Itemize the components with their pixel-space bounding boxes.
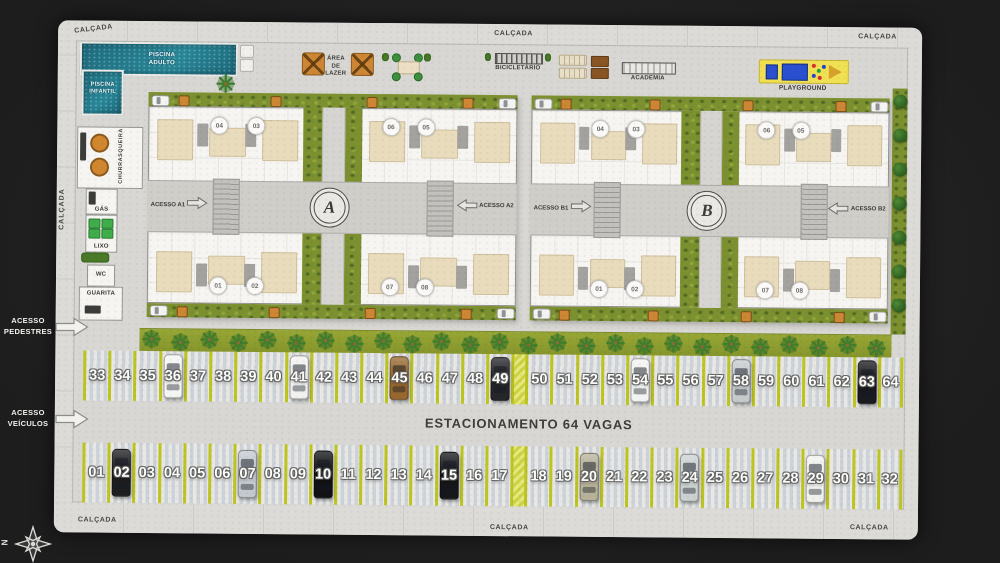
- parking-slot-number: 40: [265, 369, 281, 385]
- wc-label: WC: [88, 272, 114, 278]
- parking-slot-number: 20: [581, 469, 597, 485]
- parking-slot-number: 13: [390, 467, 406, 483]
- stair-core: [593, 182, 621, 238]
- parking-slot-number: 53: [607, 372, 623, 388]
- stair-core: [801, 184, 829, 240]
- parking-slot-06: 06: [208, 444, 234, 504]
- building-a: A0403060501020708ACESSO A1ACESSO A2: [147, 92, 518, 320]
- parking-slot-number: 02: [113, 465, 129, 481]
- apartment-fixture: [197, 123, 208, 146]
- parking-slot-03: 03: [132, 443, 158, 503]
- apartment-fixture: [831, 129, 842, 152]
- access-arrow-icon: [570, 200, 591, 218]
- carport-car-icon: [534, 98, 552, 109]
- unit-number-badge: 07: [381, 278, 399, 296]
- unit-number-badge: 08: [790, 282, 808, 300]
- parking-slot-number: 08: [265, 466, 281, 482]
- tree-icon: [892, 231, 906, 245]
- tree-strip: [891, 89, 908, 335]
- palm-tree-icon: [692, 337, 712, 357]
- parking-slot-60: 60: [777, 357, 803, 407]
- garden-table-icon: [836, 101, 847, 112]
- parking-slot-57: 57: [701, 356, 727, 406]
- parking-slot-number: 55: [657, 372, 673, 388]
- parking-slot-58: 58: [727, 356, 753, 406]
- bush-icon: [545, 53, 551, 61]
- bush-icon: [81, 252, 109, 262]
- trash-bin-icon: [88, 219, 100, 229]
- sidewalk-left: [54, 40, 77, 502]
- parking-slot-number: 11: [341, 467, 356, 483]
- palm-tree-icon: [460, 335, 480, 355]
- parking-slot-54: 54: [626, 355, 652, 405]
- parking-slot-number: 32: [882, 471, 898, 487]
- apartment-fixture: [579, 126, 590, 149]
- sidewalk-label: CALÇADA: [58, 188, 65, 230]
- playground-item: [766, 64, 778, 79]
- parking-slot-37: 37: [184, 351, 210, 401]
- leisure-area-label: ÁREA DE LAZER: [322, 56, 350, 79]
- parking-slot-number: 48: [467, 371, 483, 387]
- palm-tree-icon: [402, 334, 422, 354]
- palm-tree-icon: [199, 329, 219, 349]
- apartment-furniture: [156, 251, 192, 292]
- guardhouse: GUARITA: [79, 286, 123, 320]
- adult-pool-label: PISCINA ADULTO: [140, 52, 184, 67]
- parking-slot-number: 62: [834, 374, 850, 390]
- bbq-counter-icon: [80, 132, 86, 160]
- apartment-furniture: [846, 257, 881, 298]
- access-arrow-icon: [828, 202, 849, 215]
- parking-slot-25: 25: [701, 448, 727, 508]
- garden-table-icon: [834, 312, 845, 323]
- pedestrian-access-label: ACESSO PEDESTRES: [2, 316, 54, 337]
- palm-tree-icon: [257, 330, 277, 350]
- parking-slot-35: 35: [133, 351, 159, 401]
- unit-number-badge: 02: [246, 277, 264, 295]
- parking-slot-number: 38: [215, 369, 231, 385]
- parking-slot-number: 43: [341, 370, 357, 386]
- parking-slot-number: 37: [190, 368, 206, 384]
- unit-number-badge: 06: [382, 118, 400, 136]
- sidewalk-label: CALÇADA: [490, 524, 529, 531]
- parking-slot-number: 39: [240, 369, 256, 385]
- parking-row-bottom: 0102030405060708091011121314151617181920…: [82, 442, 902, 509]
- trash-bin-icon: [101, 229, 113, 239]
- parking-slot-52: 52: [575, 355, 601, 405]
- unit-number-badge: 03: [627, 120, 645, 138]
- parking-slot-05: 05: [183, 443, 209, 503]
- garden-table-icon: [176, 306, 187, 317]
- palm-tree-icon: [228, 333, 248, 353]
- guardhouse-label: GUARITA: [80, 290, 122, 296]
- playground-item: [817, 69, 821, 73]
- parking-slot-23: 23: [650, 447, 676, 507]
- building-letter: A: [324, 198, 336, 218]
- palm-tree-icon: [431, 332, 451, 352]
- parking-slot-30: 30: [826, 449, 852, 509]
- parking-slot-13: 13: [384, 445, 410, 505]
- parking-slot-number: 16: [466, 468, 482, 484]
- playground-structure: [759, 59, 849, 84]
- sidewalk-label: CALÇADA: [850, 524, 889, 531]
- unit-number-badge: 05: [417, 118, 435, 136]
- bush-icon: [424, 53, 431, 61]
- unit-number-badge: 02: [626, 280, 644, 298]
- parking-slot-number: 57: [708, 373, 724, 389]
- garden-table-icon: [741, 311, 752, 322]
- palm-tree-icon: [170, 332, 190, 352]
- access-arrow-icon: [456, 199, 477, 212]
- sidewalk-label: CALÇADA: [78, 516, 117, 523]
- apartment-furniture: [473, 254, 509, 295]
- pedestrian-access-arrow-icon: [55, 317, 89, 337]
- carport-car-icon: [152, 95, 170, 106]
- bbq-room: CHURRASQUEIRA: [77, 126, 144, 189]
- building-access-label: ACESSO B2: [851, 206, 886, 212]
- parking-slot-62: 62: [827, 357, 853, 407]
- carport-car-icon: [150, 305, 168, 316]
- compass-rose-icon: [14, 525, 52, 563]
- apartment-fixture: [196, 263, 207, 286]
- access-arrow-icon: [187, 196, 208, 214]
- parking-slot-number: 19: [556, 469, 572, 485]
- site-plan-image: CALÇADA CALÇADA CALÇADA CALÇADA CALÇADA …: [0, 0, 1000, 563]
- parking-slot-28: 28: [776, 449, 802, 509]
- palm-tree-icon: [750, 337, 770, 357]
- gym-mat-icon: [591, 68, 609, 79]
- tree-icon: [892, 197, 906, 211]
- palm-tree-icon: [315, 330, 335, 350]
- apartment-furniture: [642, 123, 677, 164]
- garden-table-icon: [364, 307, 375, 318]
- parking-slot-01: 01: [82, 442, 108, 502]
- parking-slot-20: 20: [575, 447, 601, 507]
- apartment-furniture: [538, 255, 573, 296]
- gym-mat-icon: [591, 56, 609, 67]
- gas-label: GÁS: [87, 206, 117, 212]
- parking-slot-21: 21: [600, 447, 626, 507]
- parking-slot-41: 41: [284, 352, 310, 402]
- building-letter-badge: A: [309, 187, 349, 227]
- palm-tree-icon: [141, 329, 161, 349]
- pool-lounger: [240, 45, 254, 58]
- bbq-table-icon: [90, 134, 109, 153]
- parking-slot-59: 59: [752, 356, 778, 406]
- parking-slot-number: 52: [582, 372, 598, 388]
- building-access-right: ACESSO B2: [828, 202, 886, 216]
- parking-slot-number: 61: [808, 374, 824, 390]
- wc-room: WC: [87, 265, 115, 287]
- bush-icon: [485, 53, 491, 61]
- palm-tree-icon: [721, 334, 741, 354]
- palm-tree-icon: [837, 335, 857, 355]
- gym-bench-icon: [559, 55, 587, 66]
- parking-slot-number: 64: [882, 374, 898, 390]
- parking-slot-number: 27: [757, 470, 773, 486]
- parking-slot-45: 45: [385, 353, 411, 403]
- garden-table-icon: [558, 309, 569, 320]
- garden-table-icon: [268, 307, 279, 318]
- parking-slot-55: 55: [651, 355, 677, 405]
- parking-slot-29: 29: [801, 449, 827, 509]
- unit-number-badge: 08: [416, 278, 434, 296]
- parking-slot-number: 30: [833, 471, 849, 487]
- vehicle-access-arrow-icon: [55, 409, 89, 429]
- bbq-label: CHURRASQUEIRA: [118, 130, 124, 184]
- parking-slot-number: 03: [139, 465, 155, 481]
- parking-slot-27: 27: [751, 448, 777, 508]
- garden-table-icon: [462, 97, 473, 108]
- apartment-furniture: [540, 122, 575, 163]
- unit-number-badge: 03: [247, 117, 265, 135]
- building-access-label: ACESSO A2: [479, 202, 514, 208]
- apartment-furniture: [641, 256, 676, 297]
- carport-car-icon: [870, 101, 888, 112]
- unit-number-badge: 05: [792, 122, 810, 140]
- gym-label: ACADEMIA: [618, 75, 678, 83]
- parking-slot-number: 22: [631, 469, 647, 485]
- parking-slot-number: 18: [530, 468, 546, 484]
- parking-slot-08: 08: [258, 444, 284, 504]
- parking-slot-number: 34: [114, 368, 130, 384]
- palm-tree-icon: [663, 334, 683, 354]
- parking-slot-number: 24: [682, 470, 698, 486]
- parking-slot-number: 49: [492, 371, 508, 387]
- parking-slot-14: 14: [409, 445, 435, 505]
- parking-slot-number: 47: [442, 371, 458, 387]
- palm-tree-icon: [605, 333, 625, 353]
- tree-icon: [892, 163, 906, 177]
- parking-slot-number: 59: [758, 373, 774, 389]
- palm-tree-icon: [489, 332, 509, 352]
- sidewalk-label: CALÇADA: [858, 33, 897, 40]
- palm-tree-icon: [866, 338, 886, 358]
- bike-rack-icon: [495, 53, 543, 64]
- site-plan-sheet: CALÇADA CALÇADA CALÇADA CALÇADA CALÇADA …: [54, 20, 922, 540]
- parking-slot-12: 12: [359, 445, 385, 505]
- kids-pool-label: PISCINA INFANTIL: [84, 81, 122, 95]
- apartment-furniture: [157, 119, 193, 160]
- parking-slot-34: 34: [108, 351, 134, 401]
- apartment-furniture: [262, 120, 298, 161]
- parking-slot-11: 11: [334, 445, 360, 505]
- parking-slot-number: 29: [807, 471, 823, 487]
- parking-row-top: 3334353637383940414243444546474849505152…: [83, 350, 903, 407]
- unit-number-badge: 04: [591, 120, 609, 138]
- parking-slot-02: 02: [107, 443, 133, 503]
- parking-slot-18: 18: [524, 446, 550, 506]
- bush-icon: [382, 53, 389, 61]
- parking-slot-49: 49: [486, 354, 512, 404]
- stair-core: [426, 180, 454, 236]
- parking-slot-number: 28: [782, 471, 798, 487]
- parking-slot-number: 44: [366, 370, 382, 386]
- building-access-right: ACESSO A2: [456, 199, 514, 213]
- parking-slot-46: 46: [410, 353, 436, 403]
- tree-icon: [891, 299, 905, 313]
- parking-slot-number: 45: [391, 370, 407, 386]
- parking-slot-09: 09: [284, 444, 310, 504]
- parking-slot-42: 42: [310, 352, 336, 402]
- unit-number-badge: 01: [590, 280, 608, 298]
- parking-slot-15: 15: [435, 446, 461, 506]
- parking-slot-32: 32: [877, 449, 903, 509]
- tree-icon: [892, 265, 906, 279]
- parking-slot-number: 07: [239, 466, 255, 482]
- parking-slot-number: 56: [682, 373, 698, 389]
- pergola-table-icon: [351, 53, 374, 76]
- parking-slot-04: 04: [158, 443, 184, 503]
- garden-table-icon: [366, 96, 377, 107]
- building-access-label: ACESSO A1: [151, 202, 186, 208]
- parking-title: ESTACIONAMENTO 64 VAGAS: [83, 412, 903, 434]
- parking-slot-43: 43: [335, 353, 361, 403]
- parking-slot-44: 44: [360, 353, 386, 403]
- parking-slot-number: 25: [707, 470, 723, 486]
- parking-slot-number: 46: [417, 370, 433, 386]
- parking-slot-64: 64: [878, 357, 904, 407]
- parking-slot-31: 31: [852, 449, 878, 509]
- parking-slot-number: 06: [214, 466, 230, 482]
- palm-tree-icon: [518, 335, 538, 355]
- guard-desk-icon: [85, 305, 101, 313]
- apartment-fixture: [830, 269, 841, 292]
- apartment-furniture: [474, 122, 510, 163]
- playground-label: PLAYGROUND: [760, 84, 846, 93]
- parking-slot-07: 07: [233, 444, 259, 504]
- palm-tree-icon: [634, 336, 654, 356]
- playground-item: [812, 74, 816, 78]
- compass-north-label: N: [0, 540, 9, 546]
- playground-item: [822, 65, 826, 69]
- palm-tree-icon: [547, 333, 567, 353]
- bike-rack-label: BICICLETÁRIO: [483, 65, 553, 73]
- building-access-label: ACESSO B1: [534, 205, 569, 211]
- parking-slot-number: 05: [189, 465, 205, 481]
- tree-icon: [893, 95, 907, 109]
- parking-slot-number: 01: [88, 465, 104, 481]
- palm-tree-icon: [576, 336, 596, 356]
- stair-core: [212, 179, 240, 235]
- parking-slot-number: 36: [165, 368, 181, 384]
- parking-slot-number: 60: [783, 374, 799, 390]
- parking-row-divider-hatch: [510, 446, 525, 506]
- parking-slot-50: 50: [525, 354, 551, 404]
- trash-label: LIXO: [86, 243, 116, 249]
- vehicle-access-label: ACESSO VEÍCULOS: [2, 408, 54, 429]
- playground-item: [812, 64, 816, 68]
- parking-slot-number: 14: [416, 467, 432, 483]
- palm-tree-icon: [344, 334, 364, 354]
- carport-car-icon: [869, 311, 887, 322]
- carport-car-icon: [498, 98, 516, 109]
- parking-slot-47: 47: [436, 354, 462, 404]
- parking-slot-number: 41: [291, 369, 307, 385]
- parking-slot-number: 63: [859, 374, 875, 390]
- apartment-furniture: [847, 125, 882, 166]
- garden-table-icon: [650, 99, 661, 110]
- carport-car-icon: [533, 308, 551, 319]
- parking-slot-17: 17: [485, 446, 511, 506]
- parking-slot-56: 56: [676, 356, 702, 406]
- playground-item: [818, 76, 822, 80]
- parking-slot-10: 10: [309, 444, 335, 504]
- kids-pool: PISCINA INFANTIL: [81, 69, 123, 115]
- parking-slot-number: 31: [858, 471, 874, 487]
- palm-tree-icon: [216, 74, 236, 94]
- parking-slot-number: 33: [89, 368, 105, 384]
- parking-slot-number: 17: [491, 468, 507, 484]
- sidewalk-label: CALÇADA: [494, 30, 533, 37]
- garden-table-icon: [270, 96, 281, 107]
- apartment-fixture: [457, 125, 468, 148]
- garden-table-icon: [648, 310, 659, 321]
- parking-slot-38: 38: [209, 352, 235, 402]
- chair-icon: [392, 72, 401, 81]
- parking-slot-number: 15: [441, 468, 457, 484]
- parking-slot-number: 58: [733, 373, 749, 389]
- gym-equipment-icon: [622, 62, 676, 74]
- parking-slot-number: 51: [556, 372, 572, 388]
- parking-slot-51: 51: [550, 355, 576, 405]
- apartment-fixture: [578, 267, 589, 290]
- apartment-fixture: [456, 266, 467, 289]
- palm-tree-icon: [779, 335, 799, 355]
- parking-slot-63: 63: [853, 357, 879, 407]
- parking-slot-22: 22: [625, 447, 651, 507]
- parking-slot-39: 39: [234, 352, 260, 402]
- garden-table-icon: [178, 95, 189, 106]
- carport-car-icon: [497, 308, 515, 319]
- parking-slot-number: 09: [290, 466, 306, 482]
- parking-row-divider-hatch: [511, 354, 525, 404]
- building-access-left: ACESSO B1: [534, 199, 592, 218]
- gas-tank-icon: [89, 192, 96, 205]
- chair-icon: [414, 72, 423, 81]
- trash-room: LIXO: [85, 214, 117, 252]
- playground-item: [782, 64, 808, 81]
- parking-slot-24: 24: [675, 448, 701, 508]
- garden-table-icon: [560, 98, 571, 109]
- parking-slot-number: 23: [656, 469, 672, 485]
- parking-slot-16: 16: [460, 446, 486, 506]
- parking-slot-48: 48: [461, 354, 487, 404]
- garden-table-icon: [460, 308, 471, 319]
- parking-slot-number: 04: [164, 465, 180, 481]
- parking-slot-40: 40: [259, 352, 285, 402]
- garden-table-icon: [743, 100, 754, 111]
- parking-slot-number: 54: [632, 372, 648, 388]
- apartment-furniture: [261, 252, 297, 293]
- building-b: B0403060501020708ACESSO B1ACESSO B2: [530, 95, 890, 323]
- trash-bin-icon: [88, 229, 100, 239]
- playground-slide-icon: [829, 65, 842, 79]
- building-access-left: ACESSO A1: [151, 196, 209, 215]
- parking-slot-number: 42: [316, 370, 332, 386]
- parking-slot-number: 12: [365, 467, 381, 483]
- tree-icon: [893, 129, 907, 143]
- parking-slot-36: 36: [158, 351, 184, 401]
- parking-slot-19: 19: [549, 447, 575, 507]
- parking-slot-number: 10: [315, 466, 331, 482]
- parking-slot-number: 35: [139, 368, 155, 384]
- gym-bench-icon: [559, 68, 587, 79]
- palm-tree-icon: [808, 338, 828, 358]
- parking-slot-number: 26: [732, 470, 748, 486]
- parking-slot-61: 61: [802, 357, 828, 407]
- trash-bin-icon: [101, 219, 113, 229]
